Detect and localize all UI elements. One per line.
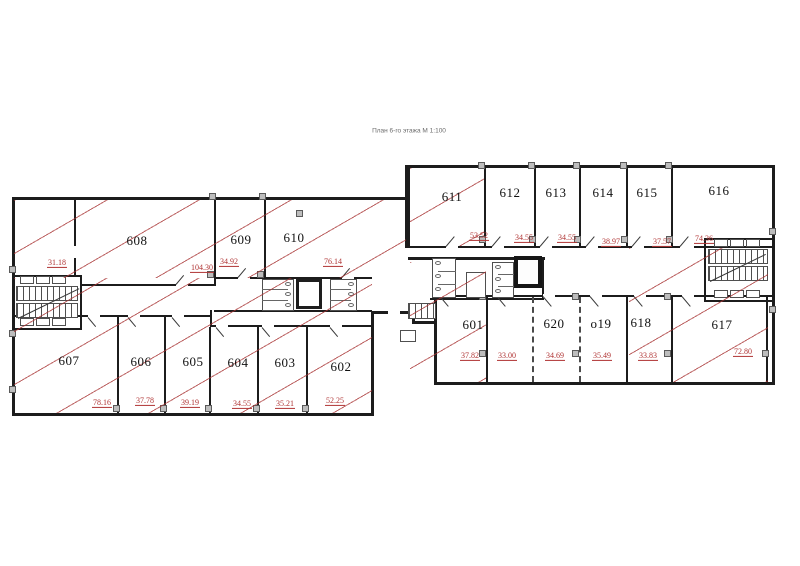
- column-marker: [479, 350, 486, 357]
- room-area-616: 74.36: [694, 234, 714, 244]
- column-marker: [9, 330, 16, 337]
- room-area-611: 53.52: [469, 231, 489, 241]
- toilet-fixture-icon: [495, 265, 501, 269]
- stall-divider: [330, 289, 351, 290]
- wall: [210, 325, 373, 327]
- door-opening: [330, 324, 342, 328]
- elevator-shaft: [514, 256, 542, 288]
- column-marker: [572, 350, 579, 357]
- column-marker: [257, 271, 264, 278]
- floor-plan: План 6-го этажа М 1:100 608 609 610 611 …: [0, 0, 800, 566]
- door-opening: [586, 245, 598, 249]
- door-leaf: [88, 317, 96, 327]
- shaft-box: [20, 276, 34, 284]
- room-label-615: 615: [637, 185, 658, 201]
- shaft-box: [714, 239, 728, 247]
- column-marker: [478, 162, 485, 169]
- door-leaf: [128, 317, 136, 327]
- toilet-fixture-icon: [495, 277, 501, 281]
- room-area-617: 72.80: [733, 347, 753, 357]
- column-marker: [9, 386, 16, 393]
- column-marker: [209, 193, 216, 200]
- column-marker: [113, 405, 120, 412]
- shaft-box: [52, 318, 66, 326]
- room-label-619: o19: [591, 316, 612, 332]
- room-area-b: 33.00: [497, 351, 517, 361]
- wall: [80, 284, 216, 286]
- wall: [766, 297, 768, 382]
- wall: [671, 297, 673, 382]
- toilet-fixture-icon: [435, 287, 441, 291]
- room-area-613: 34.55: [557, 233, 577, 243]
- stall-divider: [498, 274, 514, 275]
- room-area-610: 76.14: [323, 257, 343, 267]
- room-label-612: 612: [500, 185, 521, 201]
- room-area-619: 35.49: [592, 351, 612, 361]
- wall: [542, 257, 544, 299]
- door-opening: [73, 246, 77, 258]
- column-marker: [259, 193, 266, 200]
- column-marker: [665, 162, 672, 169]
- wall: [430, 298, 544, 300]
- room-area-618: 33.83: [638, 351, 658, 361]
- stall-divider: [438, 284, 456, 285]
- column-marker: [253, 405, 260, 412]
- shaft-box: [746, 290, 760, 298]
- door-opening: [216, 324, 228, 328]
- wall: [434, 382, 775, 385]
- column-marker: [621, 236, 628, 243]
- toilet-fixture-icon: [285, 292, 291, 296]
- wall: [405, 165, 410, 248]
- door-opening: [88, 314, 100, 318]
- room-area-620: 34.69: [545, 351, 565, 361]
- door-opening: [128, 314, 140, 318]
- toilet-fixture-icon: [435, 274, 441, 278]
- room-area-606: 37.78: [135, 396, 155, 406]
- room-label-611: 611: [442, 189, 463, 205]
- room-area-602: 52.25: [325, 396, 345, 406]
- door-opening: [176, 283, 188, 287]
- room-area-608: 104.30: [190, 263, 214, 273]
- door-leaf: [262, 327, 270, 337]
- door-opening: [172, 314, 184, 318]
- elevator-shaft: [296, 279, 322, 309]
- column-marker: [302, 405, 309, 412]
- toilet-fixture-icon: [285, 282, 291, 286]
- door-leaf: [172, 317, 180, 327]
- toilet-fixture-icon: [348, 292, 354, 296]
- column-marker: [9, 266, 16, 273]
- shaft-box: [730, 239, 744, 247]
- column-marker: [205, 405, 212, 412]
- room-label-613: 613: [546, 185, 567, 201]
- shaft-box: [400, 330, 416, 342]
- column-marker: [762, 350, 769, 357]
- room-area-601: 37.82: [460, 351, 480, 361]
- door-opening: [540, 245, 552, 249]
- wall: [264, 199, 266, 278]
- door-opening: [446, 245, 458, 249]
- column-marker: [528, 162, 535, 169]
- wall: [405, 165, 775, 168]
- wall: [214, 199, 216, 286]
- toilet-fixture-icon: [285, 303, 291, 307]
- wall: [704, 300, 772, 302]
- room-area-615: 37.57: [652, 237, 672, 247]
- column-marker: [296, 210, 303, 217]
- wall: [12, 413, 374, 416]
- room-label-608: 608: [127, 233, 148, 249]
- partition-dashed-wall: [579, 297, 581, 382]
- room-label-620: 620: [544, 316, 565, 332]
- room-label-607: 607: [59, 353, 80, 369]
- wall: [772, 165, 775, 385]
- wall: [626, 297, 628, 382]
- room-label-610: 610: [284, 230, 305, 246]
- toilet-fixture-icon: [435, 261, 441, 265]
- room-label-616: 616: [709, 183, 730, 199]
- room-label-604: 604: [228, 355, 249, 371]
- shaft-box: [746, 239, 760, 247]
- room-label-609: 609: [231, 232, 252, 248]
- shaft-box: [714, 290, 728, 298]
- stall-divider: [498, 286, 514, 287]
- shaft-box: [36, 276, 50, 284]
- door-leaf: [216, 327, 224, 337]
- room-area-605: 39.19: [180, 398, 200, 408]
- wall: [306, 327, 308, 413]
- column-marker: [573, 162, 580, 169]
- wall: [74, 197, 76, 277]
- stall-divider: [438, 271, 456, 272]
- column-marker: [572, 293, 579, 300]
- room-label-602: 602: [331, 359, 352, 375]
- room-area-614: 38.97: [601, 237, 621, 247]
- door-opening: [680, 245, 694, 249]
- column-marker: [664, 350, 671, 357]
- wall: [209, 327, 211, 413]
- door-opening: [492, 245, 504, 249]
- room-area-612: 34.55: [514, 233, 534, 243]
- column-marker: [620, 162, 627, 169]
- wall: [486, 297, 488, 382]
- room-label-603: 603: [275, 355, 296, 371]
- staircase-flight: [16, 303, 78, 318]
- column-marker: [769, 228, 776, 235]
- wall: [12, 197, 15, 416]
- stall-divider: [262, 289, 288, 290]
- room-label-606: 606: [131, 354, 152, 370]
- shaft-box: [466, 272, 486, 298]
- partition-dashed-wall: [532, 297, 534, 382]
- column-marker: [769, 306, 776, 313]
- room-area-607: 78.16: [92, 398, 112, 408]
- door-opening: [388, 310, 400, 314]
- toilet-fixture-icon: [348, 282, 354, 286]
- column-marker: [160, 405, 167, 412]
- shaft-box: [730, 290, 744, 298]
- door-leaf: [330, 327, 338, 337]
- plan-title: План 6-го этажа М 1:100: [372, 128, 446, 135]
- room-area-609: 34.92: [219, 257, 239, 267]
- room-area-603: 35.21: [275, 399, 295, 409]
- door-opening: [262, 324, 274, 328]
- room-label-601: 601: [463, 317, 484, 333]
- room-label-617: 617: [712, 317, 733, 333]
- column-marker: [664, 293, 671, 300]
- room-label-605: 605: [183, 354, 204, 370]
- wall: [117, 317, 119, 413]
- stall-divider: [330, 300, 351, 301]
- stall-divider: [262, 300, 288, 301]
- door-opening: [238, 276, 250, 280]
- staircase-flight: [408, 303, 436, 319]
- toilet-fixture-icon: [495, 289, 501, 293]
- wall: [704, 238, 706, 302]
- wall: [164, 317, 166, 413]
- shaft-box: [20, 318, 34, 326]
- shaft-box: [36, 318, 50, 326]
- room-label-614: 614: [593, 185, 614, 201]
- room-area-604: 34.55: [232, 399, 252, 409]
- toilet-fixture-icon: [348, 303, 354, 307]
- wall: [257, 327, 259, 413]
- room-area-a: 31.18: [47, 258, 67, 268]
- door-opening: [632, 245, 644, 249]
- room-label-618: 618: [631, 315, 652, 331]
- shaft-box: [52, 276, 66, 284]
- wall: [12, 328, 82, 330]
